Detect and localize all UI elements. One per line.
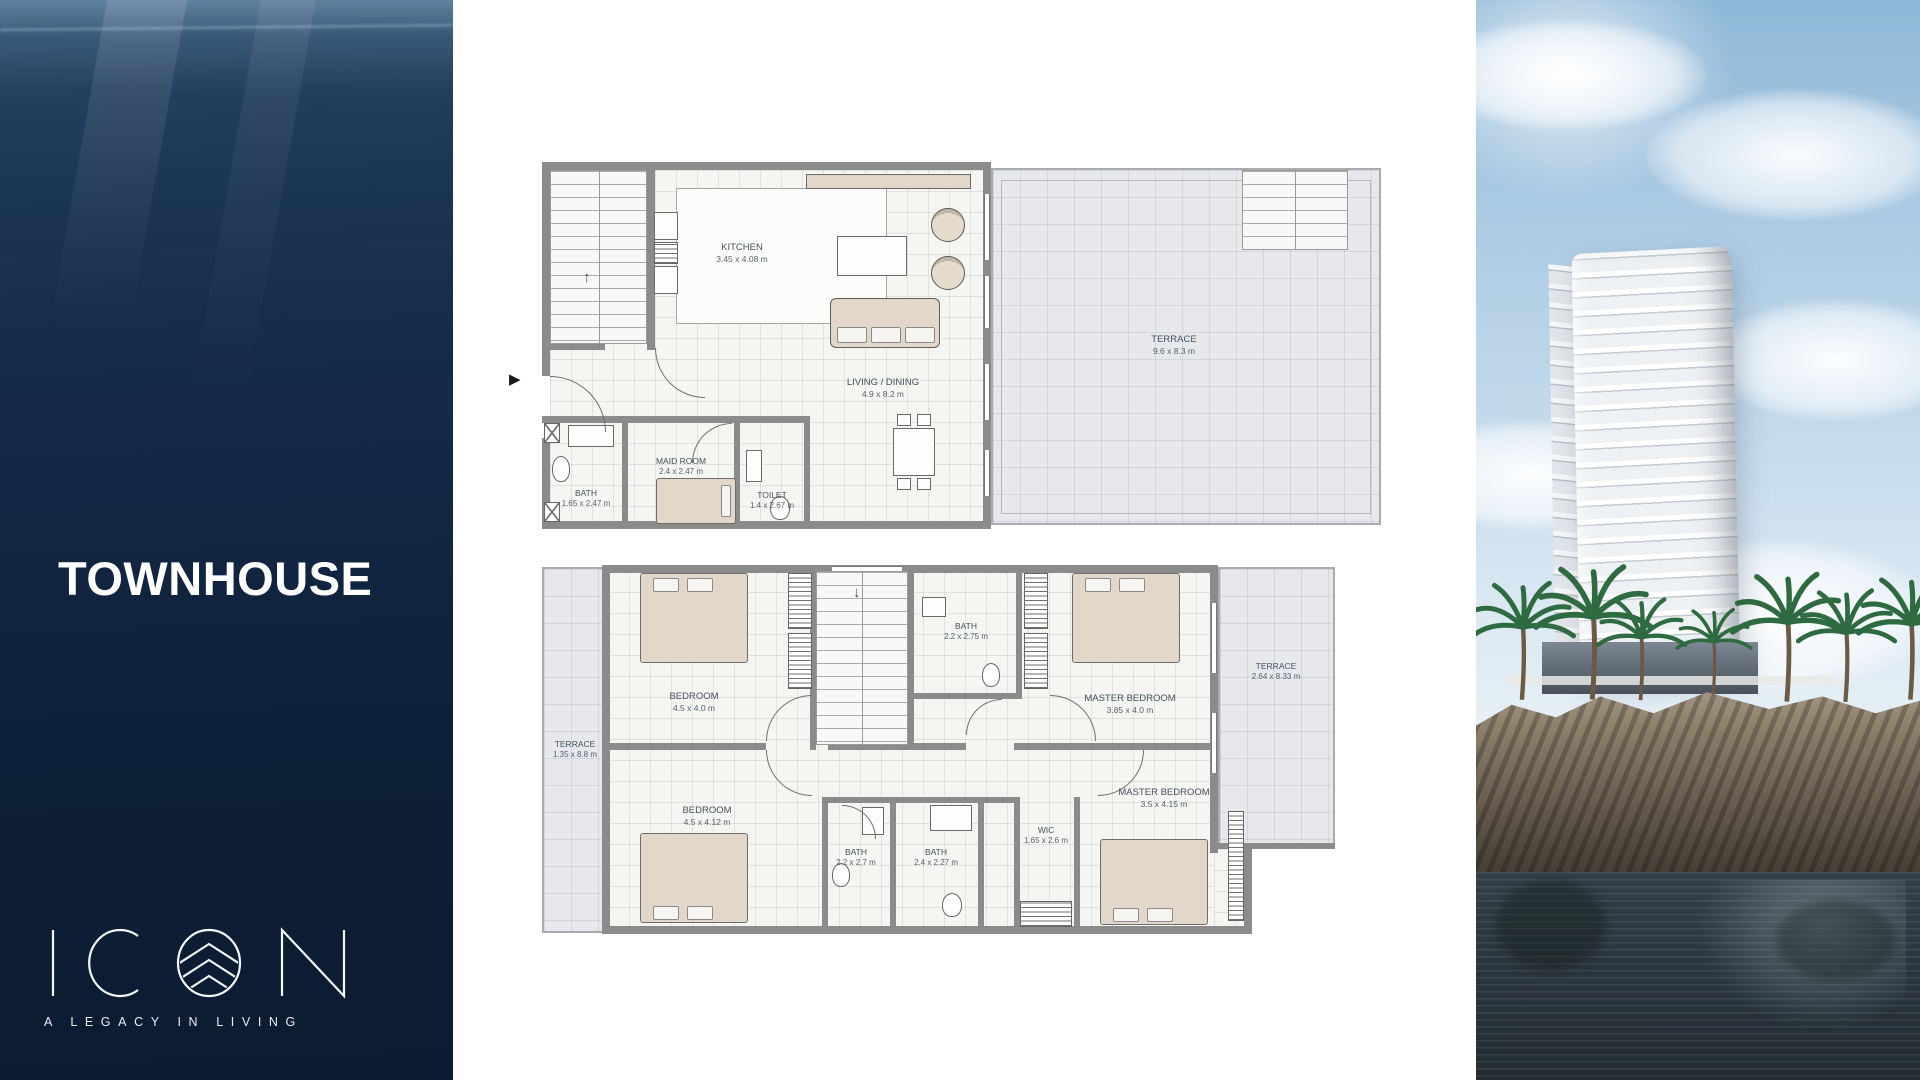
bath-sink	[930, 805, 972, 831]
room-label-bath: BATH1.65 x 2.47 m	[562, 488, 610, 509]
terrace-stairs	[1242, 170, 1348, 250]
palm-reflection	[1776, 900, 1896, 980]
window	[1211, 603, 1217, 673]
wall-segment	[908, 565, 914, 750]
wall-segment	[622, 420, 628, 529]
cloud	[1706, 300, 1920, 420]
wall-segment	[550, 344, 605, 350]
cloud	[1646, 90, 1920, 220]
room-label-terrace: TERRACE9.6 x 8.3 m	[1151, 334, 1196, 357]
wall-segment	[890, 803, 896, 934]
brand-logo: ICON A LEGACY IN LIVING	[44, 924, 364, 1029]
kitchen-sink	[654, 266, 678, 294]
window	[984, 450, 990, 496]
wall-segment	[978, 803, 984, 934]
wall-segment	[914, 693, 1020, 699]
bath-sink	[922, 597, 946, 617]
room-label-toilet: TOILET1.4 x 2.67 m	[750, 490, 794, 511]
room-label-bedroom-1: BEDROOM4.5 x 4.0 m	[669, 691, 718, 714]
wall-segment	[542, 162, 550, 376]
room-label-master-bedroom-2: MASTER BEDROOM3.5 x 4.15 m	[1118, 787, 1209, 810]
room-label-terrace-right: TERRACE2.64 x 8.33 m	[1252, 661, 1300, 682]
toilet-fixture	[552, 456, 570, 482]
wardrobe	[1024, 633, 1048, 689]
plan-pointer-icon: ▶	[509, 370, 521, 388]
palm-reflection	[1496, 880, 1606, 970]
wardrobe	[1024, 573, 1048, 629]
coffee-table	[837, 236, 907, 276]
room-label-master-bedroom-1: MASTER BEDROOM3.85 x 4.0 m	[1084, 693, 1175, 716]
left-hero-panel: TOWNHOUSE ICON A LEGACY IN LIVING	[0, 0, 453, 1080]
bed	[1072, 573, 1180, 663]
first-terrace-right	[1218, 567, 1335, 845]
water-surface-glow	[0, 0, 453, 95]
window	[984, 194, 990, 260]
kitchen-sink	[654, 212, 678, 240]
kitchen-stove	[654, 242, 678, 264]
wall-segment	[1014, 743, 1210, 750]
room-label-maid-room: MAID ROOM2.4 x 2.47 m	[656, 456, 706, 477]
armchair	[931, 256, 965, 290]
tv-console	[806, 174, 971, 189]
ground-floor-plan: ↑	[542, 158, 1385, 530]
page-title: TOWNHOUSE	[58, 551, 372, 606]
dining-chair	[917, 414, 931, 426]
brochure-page: TOWNHOUSE ICON A LEGACY IN LIVING ▶	[0, 0, 1920, 1080]
wall-segment	[1244, 843, 1252, 934]
toilet-fixture	[942, 893, 962, 917]
room-label-bath-top: BATH2.2 x 2.75 m	[944, 621, 988, 642]
building-photo-panel	[1476, 0, 1920, 1080]
room-label-terrace-left: TERRACE1.35 x 8.8 m	[553, 739, 597, 760]
dining-chair	[917, 478, 931, 490]
wall-segment	[602, 926, 1252, 934]
toilet-fixture	[982, 663, 1000, 687]
wardrobe	[788, 573, 812, 629]
window	[984, 276, 990, 328]
dining-table	[893, 428, 935, 476]
wall-segment	[542, 162, 991, 170]
icon-logo-glyphs	[44, 924, 354, 1002]
main-staircase: ↓	[816, 571, 908, 745]
room-label-kitchen: KITCHEN3.45 x 4.08 m	[716, 242, 768, 265]
window	[1211, 713, 1217, 773]
wall-segment	[822, 797, 1020, 803]
room-label-bath-mid: BATH2.4 x 2.27 m	[914, 847, 958, 868]
dining-chair	[897, 414, 911, 426]
armchair	[931, 208, 965, 242]
wardrobe	[1228, 811, 1244, 921]
wall-segment	[608, 743, 766, 750]
wardrobe	[1020, 901, 1072, 927]
window	[984, 364, 990, 420]
room-label-wic: WIC1.65 x 2.6 m	[1024, 825, 1068, 846]
dining-chair	[897, 478, 911, 490]
brand-tagline: A LEGACY IN LIVING	[44, 1015, 364, 1029]
wardrobe	[788, 633, 812, 689]
wall-segment	[822, 803, 828, 934]
sofa	[830, 298, 940, 348]
room-label-living-dining: LIVING / DINING4.9 x 8.2 m	[847, 377, 919, 400]
first-floor-plan: ↓	[542, 563, 1335, 937]
bed	[640, 833, 748, 923]
bed	[1100, 839, 1208, 925]
stairs-up-arrow: ↑	[583, 269, 591, 286]
service-shaft	[544, 502, 560, 522]
maid-bed	[656, 478, 736, 524]
toilet-sink	[746, 450, 762, 482]
bed	[640, 573, 748, 663]
main-staircase: ↑	[550, 170, 647, 344]
stairs-down-arrow: ↓	[853, 584, 861, 601]
wall-segment	[804, 420, 810, 529]
wall-segment	[542, 521, 991, 529]
rocky-shoreline	[1476, 688, 1920, 898]
wall-segment	[1074, 797, 1080, 934]
room-label-bedroom-2: BEDROOM4.5 x 4.12 m	[682, 805, 731, 828]
wall-segment	[1016, 565, 1022, 699]
room-label-bath-left: BATH2.2 x 2.7 m	[836, 847, 876, 868]
